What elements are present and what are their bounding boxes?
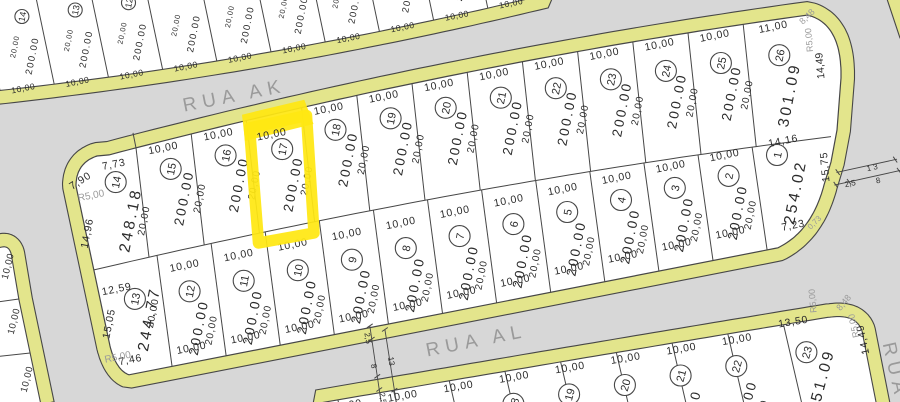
svg-text:11: 11 — [238, 274, 252, 288]
svg-text:13: 13 — [129, 292, 143, 306]
svg-text:14: 14 — [110, 175, 124, 189]
svg-text:16: 16 — [220, 148, 234, 162]
svg-text:2,5: 2,5 — [377, 392, 388, 402]
svg-text:22: 22 — [550, 81, 564, 95]
svg-text:R5,00: R5,00 — [807, 289, 819, 314]
svg-text:14: 14 — [17, 11, 29, 23]
svg-text:18: 18 — [330, 123, 344, 137]
svg-text:12: 12 — [184, 284, 198, 298]
svg-text:23: 23 — [605, 72, 619, 86]
svg-text:14,49: 14,49 — [813, 52, 827, 79]
svg-text:17: 17 — [276, 142, 290, 156]
svg-text:19: 19 — [385, 111, 399, 125]
svg-text:21: 21 — [495, 91, 509, 105]
svg-text:R5,00: R5,00 — [803, 28, 815, 53]
svg-text:15: 15 — [165, 162, 179, 176]
svg-text:24: 24 — [660, 64, 674, 78]
svg-text:20: 20 — [440, 101, 454, 115]
svg-text:25: 25 — [715, 56, 729, 70]
svg-text:10: 10 — [292, 263, 306, 277]
svg-text:26: 26 — [774, 48, 788, 62]
svg-text:12: 12 — [123, 0, 135, 9]
svg-text:13: 13 — [70, 4, 82, 16]
